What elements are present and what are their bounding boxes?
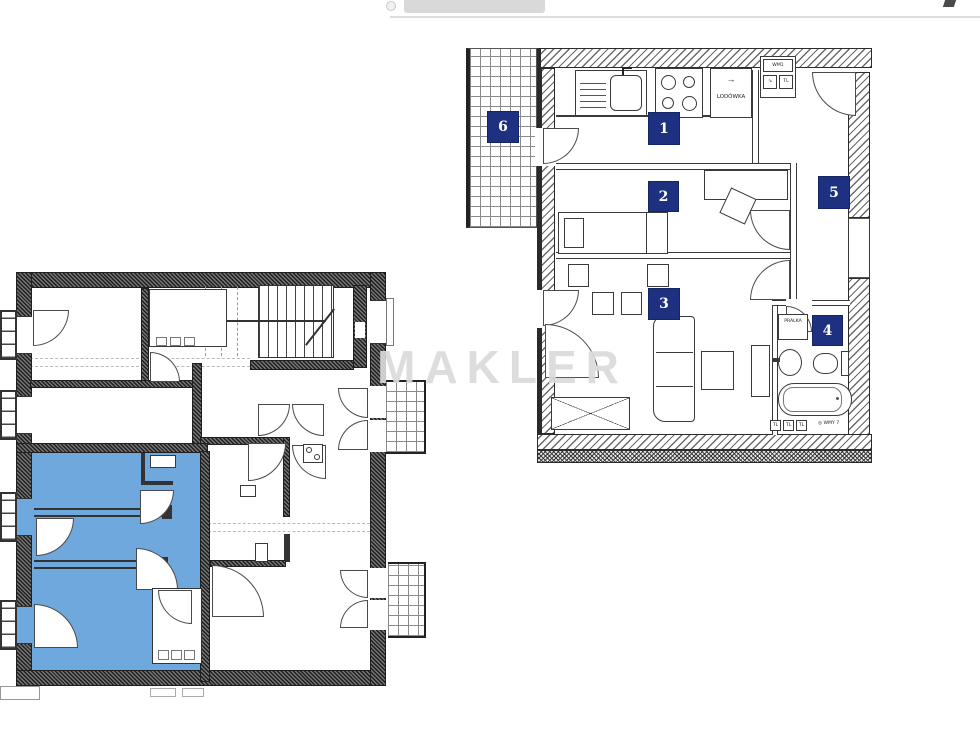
kitchen-fixture [240,485,256,497]
kitchen-fixture [255,543,268,562]
wall-under-stairs [250,360,354,370]
door-swing [340,600,368,628]
watermark: MAKLER [380,342,625,392]
window-bay [0,600,17,650]
door-gap [370,600,386,630]
window-gap [16,498,32,536]
closet-cell [170,337,181,346]
door-swing [212,565,264,617]
footing-detail [150,688,176,697]
door-swing [292,404,324,436]
wall-interior [284,534,290,562]
section-line [30,366,250,367]
window-bay [0,492,17,542]
wall-interior [141,288,149,382]
burner [306,447,312,453]
door-gap [370,420,386,452]
closet-cell [156,337,167,346]
burner [314,454,320,460]
window-gap [16,316,32,354]
wall-unit-north [16,443,208,453]
kitchen-fixture [303,444,323,463]
stair-direction-line [214,320,326,322]
window-gap [355,322,365,338]
window-gap [16,396,32,434]
bath-fixture [171,650,182,660]
door-gap [370,568,386,598]
section-line [30,358,250,359]
bath-fixture [184,650,195,660]
wall-interior [141,453,145,483]
window-pane [386,298,394,346]
floorplan-page: → LODÓWKA WM1 ↘ TL [0,0,980,735]
door-swing [33,310,69,346]
window-gap [16,606,32,644]
door-swing [338,388,368,418]
footing-detail [0,686,40,700]
door-swing [258,404,290,436]
section-line [208,523,370,524]
section-line [208,531,370,532]
footing-detail [182,688,204,697]
door-swing [340,570,368,598]
wall-interior [141,481,173,485]
window-bay [0,310,17,360]
unit-fixture [150,455,176,468]
bath-fixture [158,650,169,660]
door-swing [150,352,180,382]
closet-cell [184,337,195,346]
door-swing [338,420,368,450]
window-bay [0,390,17,440]
stair-dash [237,287,238,356]
window-gap [370,300,386,344]
door-swing [248,443,286,481]
balcony-grid [388,562,426,638]
